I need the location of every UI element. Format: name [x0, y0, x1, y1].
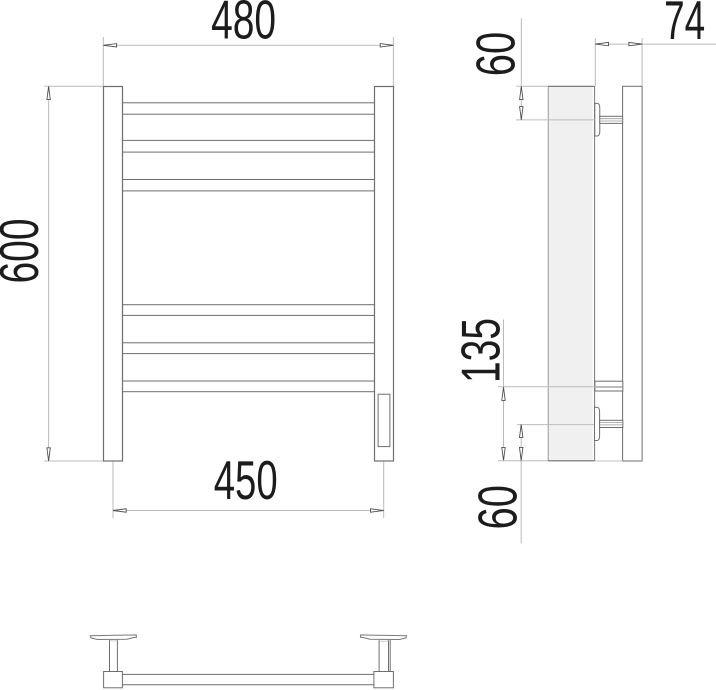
svg-text:600: 600	[0, 219, 50, 284]
svg-text:74: 74	[664, 0, 705, 51]
svg-text:60: 60	[467, 485, 529, 530]
svg-text:480: 480	[211, 0, 276, 51]
svg-text:135: 135	[450, 318, 512, 383]
svg-text:450: 450	[214, 449, 278, 511]
svg-text:60: 60	[465, 32, 527, 77]
